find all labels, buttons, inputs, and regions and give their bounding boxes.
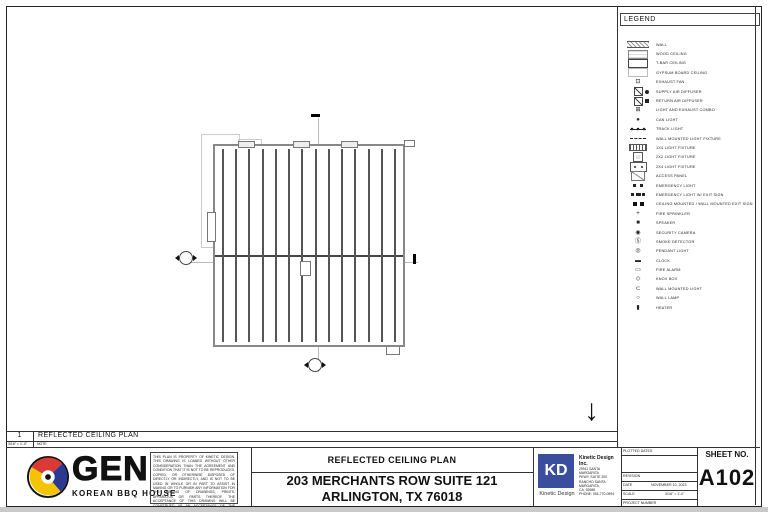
legend-item-label: CLOCK — [656, 259, 670, 263]
legend-item-label: ACCESS PANEL — [656, 174, 687, 178]
detached-fixture-rect — [404, 140, 415, 147]
legend-item-label: WALL LAMP — [656, 296, 679, 300]
speaker-icon: ■ — [620, 220, 656, 226]
ceiling-joist — [262, 149, 264, 342]
smoke-detector-icon: Ⓢ — [620, 239, 656, 245]
legend-item: T-BAR CEILING — [620, 59, 755, 68]
legend-item: ⊞LIGHT AND EXHAUST COMBO — [620, 106, 755, 115]
date-label: DATE — [623, 483, 632, 487]
legend-item-label: RETURN AIR DIFFUSER — [656, 99, 703, 103]
legend-item: ⊂WALL MOUNTED LIGHT — [620, 284, 755, 293]
access-panel-icon — [620, 171, 656, 181]
wall-mounted-light-icon: ⊂ — [620, 286, 656, 292]
legend-item: ACCESS PANEL — [620, 171, 755, 180]
legend-item-label: EXHAUST FAN — [656, 80, 685, 84]
fields-line-1 — [621, 455, 697, 456]
kd-logo: KD — [538, 454, 574, 488]
legend-item: RETURN AIR DIFFUSER — [620, 96, 755, 105]
legend-item: TRACK LIGHT — [620, 125, 755, 134]
drawing-sheet: LEGEND WALLWOOD CEILINGT-BAR CEILINGGYPS… — [0, 0, 768, 512]
wall-icon — [620, 41, 656, 48]
ceiling-diffuser-3 — [341, 141, 358, 148]
drawing-note: NOTE — [37, 442, 47, 447]
legend-item-label: GYPSUM BOARD CEILING — [656, 71, 707, 75]
legend-item: 2X4 LIGHT FIXTURE — [620, 162, 755, 171]
drawing-number: 1 — [6, 431, 33, 441]
legend-item-label: FIRE SPRINKLER — [656, 212, 690, 216]
emergency-light-exit-sign-icon — [620, 192, 656, 198]
ceiling-joist — [368, 149, 370, 342]
ceiling-joist — [248, 149, 250, 342]
legend-item-label: EMERGENCY LIGHT W/ EXIT SIGN — [656, 193, 724, 197]
legend-item-label: CAN LIGHT — [656, 118, 678, 122]
page-edge — [0, 507, 768, 512]
right-centerline-tick — [413, 254, 416, 264]
legend-item: ▭FIRE ALARM — [620, 265, 755, 274]
exhaust-fan-icon: ⊡ — [620, 79, 656, 85]
gen-logo-text: GEN — [72, 452, 149, 486]
pendant-light-icon: ◎ — [620, 248, 656, 254]
project-number-label: PROJECT NUMBER — [623, 501, 656, 505]
titleblock-divider-2 — [533, 447, 534, 506]
ceiling-joist — [222, 149, 224, 342]
date-value: NOVEMBER 10, 2023 — [651, 483, 687, 487]
legend-item: ◎PENDANT LIGHT — [620, 247, 755, 256]
legend-item: ◉SECURITY CAMERA — [620, 228, 755, 237]
fire-alarm-icon: ▭ — [620, 267, 656, 273]
kd-logo-caption: Kinetic Design — [536, 491, 578, 497]
legend-item: ○WALL LAMP — [620, 294, 755, 303]
clock-icon: ▬ — [620, 258, 656, 264]
legend-item: EMERGENCY LIGHT — [620, 181, 755, 190]
left-wall-pilaster — [207, 212, 216, 242]
security-camera-icon: ◉ — [620, 230, 656, 236]
title-strip-mid-line — [6, 441, 617, 442]
legend-item: ◇KNOX BOX — [620, 275, 755, 284]
plotted-dates-label: PLOTTED DATES — [623, 449, 652, 453]
firm-phone: PHONE: 951-770-0594 — [579, 492, 619, 496]
exit-sign-icon — [620, 202, 656, 206]
ceiling-joist — [354, 149, 356, 342]
legend-item-label: SMOKE DETECTOR — [656, 240, 694, 244]
legend-title: LEGEND — [620, 13, 760, 26]
ceiling-joist — [394, 149, 396, 342]
section-marker-bottom — [308, 358, 322, 372]
legend-item: ▮HEATER — [620, 303, 755, 312]
track-light-icon — [620, 127, 656, 131]
drawing-scale: 3/16" = 1'-0" — [8, 442, 27, 447]
top-centerline-tick — [311, 114, 320, 117]
legend-item: 1X4 LIGHT FIXTURE — [620, 143, 755, 152]
tbar-ceiling-icon — [620, 59, 656, 68]
section-marker-left — [179, 251, 193, 265]
ceiling-joist — [301, 149, 303, 342]
can-light-icon: ● — [620, 117, 656, 123]
legend-item: CEILING MOUNTED / WALL MOUNTED EXIT SIGN — [620, 200, 755, 209]
gen-logo-icon — [26, 455, 70, 504]
legend-item: 2X2 LIGHT FIXTURE — [620, 153, 755, 162]
ceiling-joist — [235, 149, 237, 342]
legend-item-label: KNOX BOX — [656, 277, 677, 281]
legend-item-label: SPEAKER — [656, 221, 675, 225]
sheet-no-label: SHEET NO. — [697, 450, 757, 459]
legend-item-label: TRACK LIGHT — [656, 127, 683, 131]
sheet-no-value: A102 — [697, 465, 757, 491]
right-margin-line — [755, 6, 756, 505]
return-air-diffuser-icon — [620, 97, 656, 106]
disclaimer-text: THIS PLAN IS PROPERTY OF KINETIC DESIGN.… — [150, 452, 238, 504]
legend-item-label: HEATER — [656, 306, 672, 310]
ceiling-diffuser-2 — [293, 141, 310, 148]
legend-item-label: SECURITY CAMERA — [656, 231, 695, 235]
fields-line-2 — [621, 472, 697, 473]
fire-sprinkler-icon: + — [620, 211, 656, 217]
legend-item: WALL — [620, 40, 755, 49]
firm-info: Kinetic Design Inc. 29911 SANTA MARGARIT… — [579, 455, 619, 496]
legend-item-label: SUPPLY AIR DIFFUSER — [656, 90, 702, 94]
gypsum-board-ceiling-icon — [620, 68, 656, 77]
1x4-light-fixture-icon — [620, 144, 656, 151]
heater-icon: ▮ — [620, 305, 656, 311]
knox-box-icon: ◇ — [620, 276, 656, 282]
project-address: 203 MERCHANTS ROW SUITE 121 ARLINGTON, T… — [251, 473, 533, 504]
wall-lamp-icon: ○ — [620, 295, 656, 301]
legend-item-label: 1X4 LIGHT FIXTURE — [656, 146, 696, 150]
legend-item: ⊡EXHAUST FAN — [620, 78, 755, 87]
legend-list: WALLWOOD CEILINGT-BAR CEILINGGYPSUM BOAR… — [620, 40, 755, 312]
ceiling-joist — [315, 149, 317, 342]
firm-address-1: 29911 SANTA MARGARITA — [579, 467, 619, 475]
legend-item-label: PENDANT LIGHT — [656, 249, 689, 253]
ceiling-mid-beam — [215, 255, 403, 257]
emergency-light-icon — [620, 183, 656, 189]
title-strip-cell-line — [33, 431, 34, 447]
drawing-title: REFLECTED CEILING PLAN — [38, 431, 139, 441]
ceiling-joist — [341, 149, 343, 342]
legend-item-label: WOOD CEILING — [656, 52, 687, 56]
light-exhaust-combo-icon: ⊞ — [620, 107, 656, 113]
project-address-line1: 203 MERCHANTS ROW SUITE 121 — [251, 473, 533, 489]
legend-item: ⓈSMOKE DETECTOR — [620, 237, 755, 246]
legend-item-label: FIRE ALARM — [656, 268, 681, 272]
supply-air-diffuser-icon — [620, 87, 656, 96]
fields-line-4 — [621, 490, 697, 491]
firm-address-3: RANCHO SANTA MARGARITA, — [579, 480, 619, 488]
scale-value: 3/16" = 1'-0" — [665, 492, 685, 496]
legend-item: ■SPEAKER — [620, 218, 755, 227]
access-panel-rect — [300, 261, 311, 276]
wood-ceiling-icon — [620, 50, 656, 59]
legend-item: ●CAN LIGHT — [620, 115, 755, 124]
legend-item: SUPPLY AIR DIFFUSER — [620, 87, 755, 96]
legend-item-label: WALL — [656, 43, 667, 47]
ceiling-joist — [328, 149, 330, 342]
north-arrow-icon: ↓ — [584, 396, 599, 426]
fields-line-3 — [621, 481, 697, 482]
legend-item-label: WALL MOUNTED LIGHT FIXTURE — [656, 137, 721, 141]
legend-item: ▬CLOCK — [620, 256, 755, 265]
ceiling-joist — [275, 149, 277, 342]
legend-item-label: LIGHT AND EXHAUST COMBO — [656, 108, 715, 112]
legend-item-label: 2X4 LIGHT FIXTURE — [656, 165, 696, 169]
legend-item-label: EMERGENCY LIGHT — [656, 184, 696, 188]
ceiling-joist — [381, 149, 383, 342]
ceiling-diffuser-1 — [238, 141, 255, 148]
legend-item: WALL MOUNTED LIGHT FIXTURE — [620, 134, 755, 143]
legend-item: +FIRE SPRINKLER — [620, 209, 755, 218]
legend-item: EMERGENCY LIGHT W/ EXIT SIGN — [620, 190, 755, 199]
legend-item-label: CEILING MOUNTED / WALL MOUNTED EXIT SIGN — [656, 202, 753, 206]
legend-item: WOOD CEILING — [620, 49, 755, 58]
legend-item: GYPSUM BOARD CEILING — [620, 68, 755, 77]
firm-name: Kinetic Design Inc. — [579, 455, 619, 467]
ceiling-joist — [288, 149, 290, 342]
revision-label: REVISION — [623, 474, 640, 478]
wall-mounted-light-fixture-icon — [620, 138, 656, 139]
project-address-line2: ARLINGTON, TX 76018 — [251, 489, 533, 504]
legend-item-label: 2X2 LIGHT FIXTURE — [656, 155, 696, 159]
legend-divider-line — [617, 6, 618, 447]
sheet-drawing-title: REFLECTED CEILING PLAN — [251, 447, 533, 472]
legend-item-label: T-BAR CEILING — [656, 61, 686, 65]
ceiling-plan-room — [213, 144, 405, 347]
fields-line-5 — [621, 499, 697, 500]
scale-label: SCALE — [623, 492, 635, 496]
legend-item-label: WALL MOUNTED LIGHT — [656, 287, 702, 291]
